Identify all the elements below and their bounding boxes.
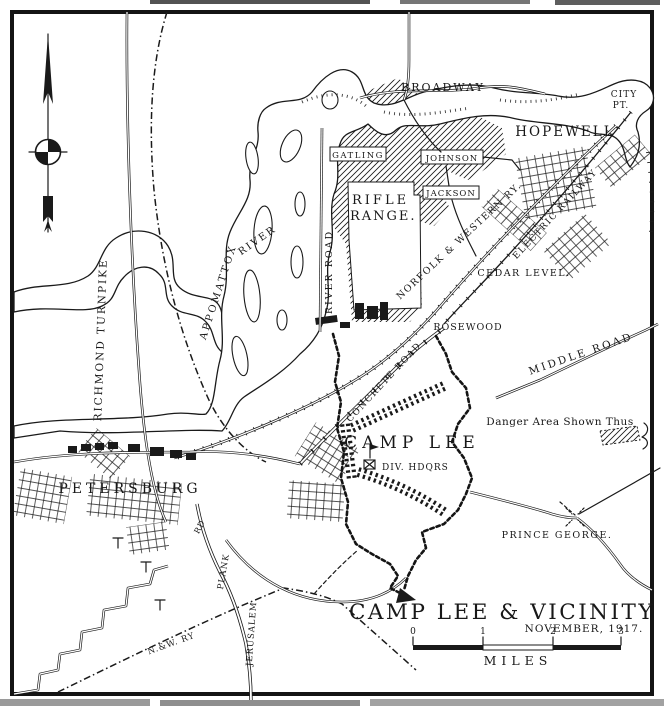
building-block xyxy=(355,303,364,319)
hopewell-label: HOPEWELL xyxy=(515,124,614,140)
johnson-label: JOHNSON xyxy=(425,154,478,164)
petersburg-small-grid xyxy=(126,522,170,555)
prince-george-label: PRINCE GEORGE. xyxy=(502,530,613,541)
scale-segment-filled xyxy=(413,645,483,650)
scale-tick-3: 3 xyxy=(618,627,624,637)
island xyxy=(322,91,338,109)
edge-mark xyxy=(0,699,150,706)
building-block xyxy=(150,447,164,456)
gatling-label: GATLING xyxy=(332,151,384,161)
map-canvas: BROADWAY CITY PT. HOPEWELL GATLING JOHNS… xyxy=(0,0,664,706)
building-block xyxy=(68,446,77,453)
edge-mark xyxy=(400,0,530,4)
map-page: BROADWAY CITY PT. HOPEWELL GATLING JOHNS… xyxy=(0,0,664,706)
div-hdqrs-label: DIV. HDQRS xyxy=(382,463,449,473)
city-point-label-1: CITY xyxy=(611,90,637,100)
island xyxy=(295,192,305,216)
building-block xyxy=(380,302,388,320)
island xyxy=(277,310,287,330)
scale-tick-0: 0 xyxy=(410,627,416,637)
city-point-label-2: PT. xyxy=(613,101,630,111)
danger-legend-label: Danger Area Shown Thus xyxy=(486,416,633,428)
scale-segment-filled xyxy=(553,645,621,650)
map-date: NOVEMBER, 1917. xyxy=(525,623,644,635)
cedar-level-label: CEDAR LEVEL. xyxy=(477,268,570,279)
building-block xyxy=(170,450,182,458)
jackson-label: JACKSON xyxy=(425,189,476,199)
building-block xyxy=(340,322,350,328)
broadway-label: BROADWAY xyxy=(401,81,485,94)
edge-mark xyxy=(160,700,360,706)
rifle-range-label-1: RIFLE xyxy=(352,193,409,208)
island xyxy=(291,246,303,278)
scale-segment-open xyxy=(483,645,553,650)
building-block xyxy=(367,306,378,319)
rosewood-label: ROSEWOOD xyxy=(433,322,502,333)
scale-tick-2: 2 xyxy=(550,627,556,637)
edge-mark xyxy=(555,0,660,5)
building-block xyxy=(81,444,91,451)
petersburg-south-grid xyxy=(287,480,346,522)
building-block xyxy=(186,453,196,460)
rifle-range-label-2: RANGE. xyxy=(350,209,417,224)
scale-unit-label: MILES xyxy=(484,653,553,668)
building-block xyxy=(128,444,140,452)
petersburg-label: PETERSBURG xyxy=(58,481,201,497)
building-block xyxy=(108,442,118,449)
map-title: CAMP LEE & VICINITY xyxy=(349,600,655,625)
camp-lee-label: CAMP LEE xyxy=(344,433,480,453)
building-block xyxy=(95,443,104,450)
edge-mark xyxy=(150,0,370,4)
scale-tick-1: 1 xyxy=(480,627,486,637)
edge-mark xyxy=(370,699,664,706)
river-road-label: RIVER ROAD xyxy=(324,230,335,314)
